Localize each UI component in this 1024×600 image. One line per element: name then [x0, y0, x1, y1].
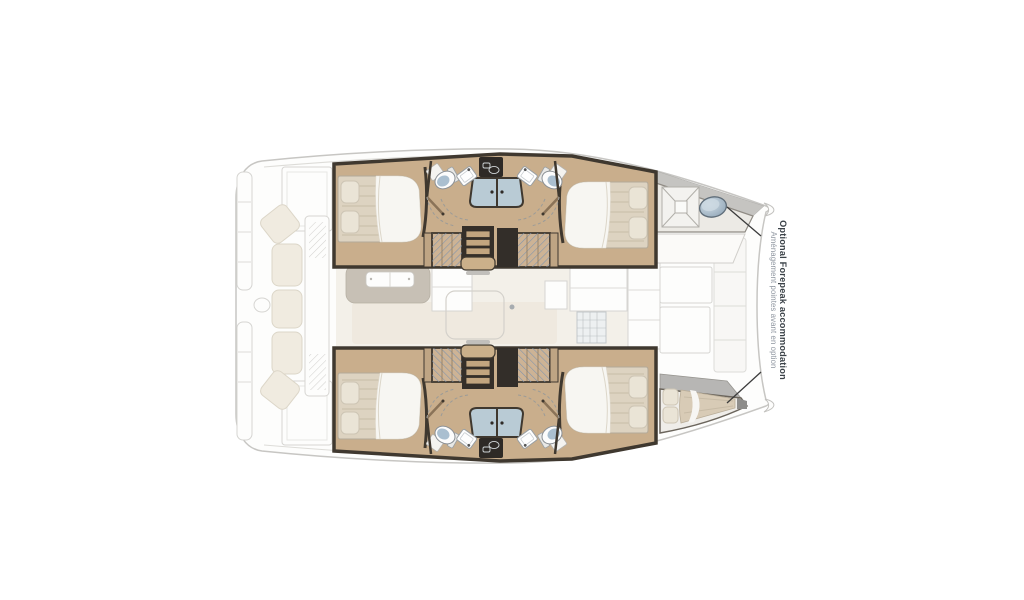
pillow [629, 187, 647, 209]
annotation-title: Optional Forepeak accommodation [778, 220, 788, 380]
shower [470, 178, 523, 207]
cockpit-cushion [272, 290, 302, 328]
pillow [341, 181, 359, 203]
forepeak-pillow [663, 407, 678, 423]
galley-stove [577, 312, 606, 343]
galley-cabinet [628, 261, 660, 349]
galley-sink [545, 281, 567, 309]
companionway-void [497, 228, 518, 267]
forward-cabin-bed [559, 175, 648, 248]
port-hull [334, 154, 656, 275]
wardrobe [516, 233, 558, 267]
pillow [341, 211, 359, 233]
wardrobe [424, 233, 462, 267]
forepeak-pillow [663, 389, 678, 405]
annotation-subtitle: Aménagement pointes avant en option [769, 231, 778, 368]
cockpit-cushion [272, 244, 302, 286]
cockpit-cushion [272, 332, 302, 374]
pillow [629, 217, 647, 239]
starboard-hull [334, 340, 656, 461]
floorplan-canvas: Optional Forepeak accommodation Aménagem… [0, 0, 1024, 600]
cockpit-table [254, 298, 270, 312]
salon-faded [336, 261, 660, 349]
deck-hatch-icon [662, 187, 699, 227]
catamaran-floorplan: Optional Forepeak accommodation Aménagem… [0, 0, 1024, 600]
forepeak-berth-slab [656, 234, 745, 263]
